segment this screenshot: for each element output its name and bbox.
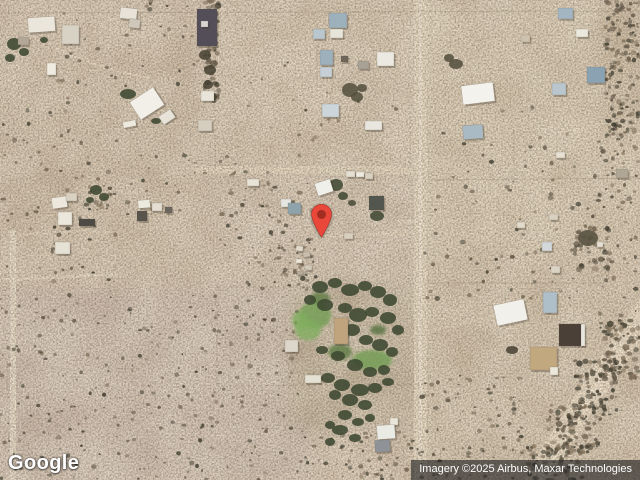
building xyxy=(313,29,327,41)
building xyxy=(62,25,81,46)
building xyxy=(358,61,371,71)
building xyxy=(346,171,357,179)
building xyxy=(47,63,58,77)
building xyxy=(581,324,587,348)
google-logo[interactable]: Google xyxy=(8,452,79,475)
building xyxy=(305,375,323,385)
building xyxy=(521,35,532,44)
building xyxy=(288,203,303,216)
building xyxy=(344,233,355,241)
building xyxy=(576,29,590,39)
map-viewport[interactable]: Google Imagery ©2025 Airbus, Maxar Techn… xyxy=(0,0,640,480)
building xyxy=(369,196,386,212)
building xyxy=(201,91,216,103)
building xyxy=(320,67,334,79)
attribution-text: Imagery ©2025 Airbus, Maxar Technologies xyxy=(419,463,632,475)
pin-dot xyxy=(316,210,325,219)
building xyxy=(58,212,74,227)
imagery-attribution: Imagery ©2025 Airbus, Maxar Technologies xyxy=(411,460,640,480)
building xyxy=(322,104,341,119)
building xyxy=(375,439,392,454)
building xyxy=(66,193,79,203)
building xyxy=(152,203,164,213)
building xyxy=(587,67,607,85)
building xyxy=(542,242,554,253)
building xyxy=(552,83,568,97)
building xyxy=(377,52,396,68)
building xyxy=(377,424,398,441)
building xyxy=(543,292,559,315)
building xyxy=(549,214,560,222)
building xyxy=(558,8,575,21)
building xyxy=(285,340,300,354)
building xyxy=(137,211,149,223)
building xyxy=(198,120,214,133)
building xyxy=(18,37,31,47)
building xyxy=(330,29,345,40)
building xyxy=(55,242,72,256)
building xyxy=(365,121,384,132)
building xyxy=(128,18,142,30)
building xyxy=(461,82,497,107)
pin-body-shape xyxy=(311,204,331,237)
building xyxy=(247,179,261,188)
building xyxy=(334,318,350,346)
building xyxy=(320,50,335,67)
building xyxy=(556,152,567,160)
location-pin[interactable] xyxy=(310,203,333,239)
building xyxy=(616,169,630,180)
building xyxy=(559,324,585,348)
building xyxy=(463,124,486,141)
satellite-imagery xyxy=(0,0,640,480)
building xyxy=(28,16,58,35)
building xyxy=(79,219,97,228)
building xyxy=(551,266,562,275)
building xyxy=(329,13,349,30)
